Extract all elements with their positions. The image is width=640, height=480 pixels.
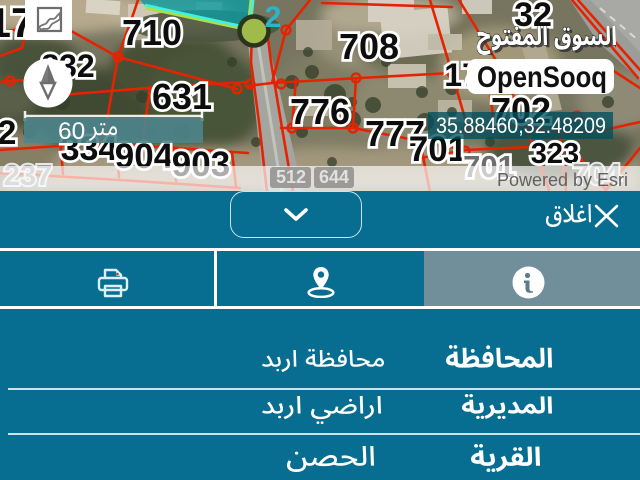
svg-text:708: 708 bbox=[339, 26, 399, 67]
svg-text:2: 2 bbox=[265, 1, 282, 34]
svg-text:60: 60 bbox=[58, 118, 85, 145]
svg-text:776: 776 bbox=[290, 91, 350, 132]
svg-text:710: 710 bbox=[122, 12, 182, 53]
svg-text:631: 631 bbox=[152, 76, 212, 117]
svg-text:OpenSooq: OpenSooq bbox=[477, 61, 607, 94]
svg-text:512: 512 bbox=[276, 167, 306, 187]
svg-text:35.88460,32.48209: 35.88460,32.48209 bbox=[436, 113, 606, 138]
svg-text:2: 2 bbox=[0, 114, 16, 152]
svg-text:644: 644 bbox=[319, 167, 349, 187]
svg-text:Powered by Esri: Powered by Esri bbox=[497, 170, 628, 190]
